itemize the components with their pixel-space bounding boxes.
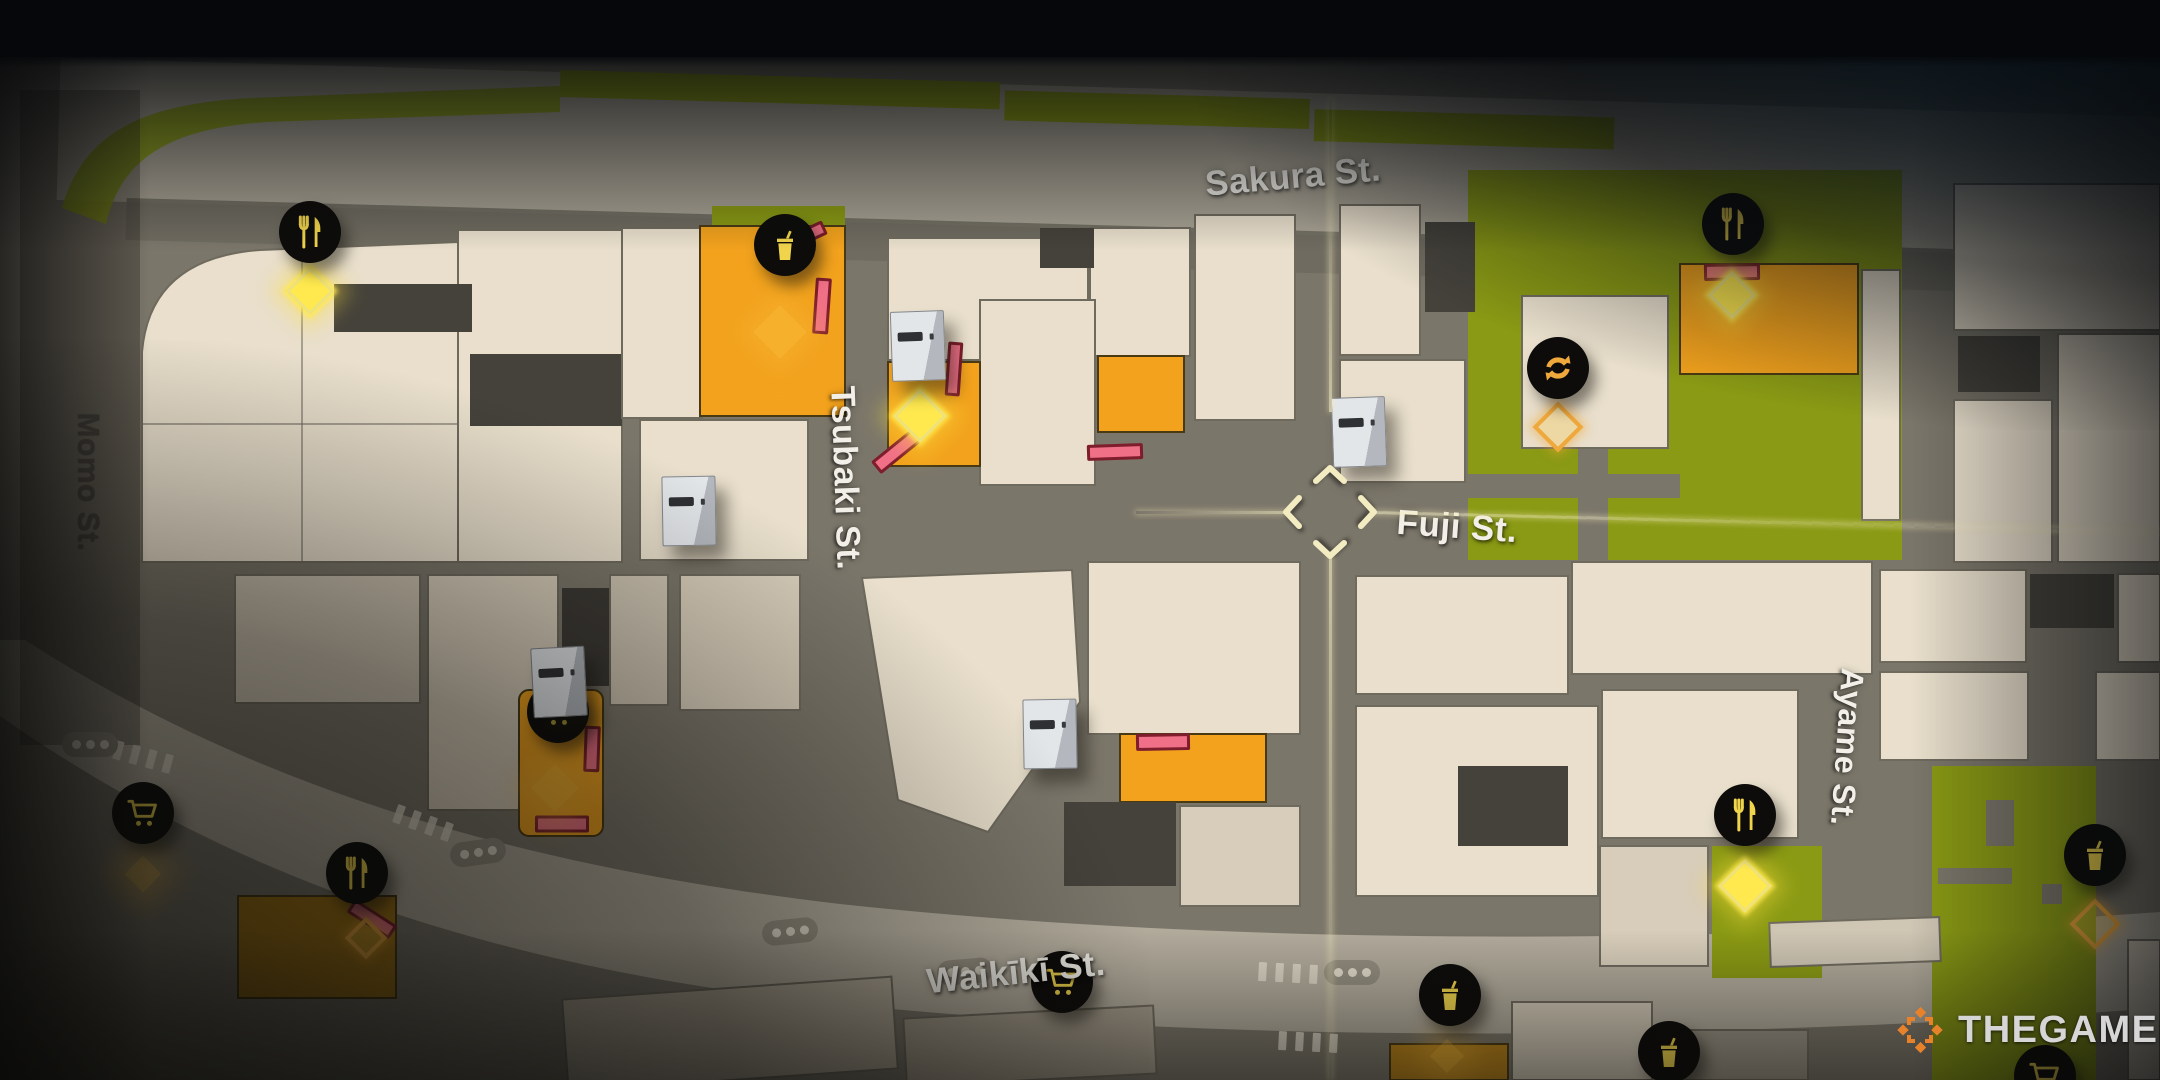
restaurant-icon[interactable] <box>279 201 341 263</box>
cursor-axis-line <box>1136 511 1288 514</box>
drink-glyph <box>1430 975 1470 1015</box>
street-label-sakura: Sakura St. <box>1203 149 1382 204</box>
objective-diamond-marker <box>1430 1039 1464 1073</box>
crosswalk-stripe <box>1312 1033 1321 1052</box>
crosswalk-stripe <box>1275 963 1284 982</box>
street-label-ayame: Ayame St. <box>1823 667 1871 827</box>
drink-icon[interactable] <box>1419 964 1481 1026</box>
crosswalk-dots <box>62 732 118 757</box>
crosswalk-dot <box>86 740 95 749</box>
restaurant-icon[interactable] <box>326 842 388 904</box>
entrance-marker <box>1087 443 1144 461</box>
restaurant-glyph <box>337 853 377 893</box>
crosswalk-stripe <box>1295 1032 1304 1051</box>
drink-glyph <box>765 225 805 265</box>
street-label-tsubaki: Tsubaki St. <box>822 385 867 571</box>
crosswalk-stripe <box>1309 965 1318 984</box>
cursor-chevron-up <box>1310 460 1350 488</box>
street-label-fuji: Fuji St. <box>1395 503 1518 551</box>
crosswalk-stripe <box>128 745 141 765</box>
map-features: Sakura St.Momo St.Tsubaki St.Fuji St.Aya… <box>0 0 2160 1080</box>
objective-diamond-marker <box>753 305 807 359</box>
crosswalk-stripe <box>161 753 174 773</box>
top-black-bar <box>0 0 2160 57</box>
drink-glyph <box>1649 1032 1689 1072</box>
objective-diamond-marker <box>2070 899 2121 950</box>
street-label-momo: Momo St. <box>71 413 105 552</box>
objective-diamond-marker <box>1718 859 1772 913</box>
crosswalk-stripe <box>1258 962 1267 981</box>
crosswalk-stripe <box>440 821 454 842</box>
crosswalk-stripes <box>392 804 454 842</box>
thegamer-watermark-text: THEGAMER <box>1958 1009 2160 1052</box>
crosswalk-dots <box>761 916 819 947</box>
crosswalk-dot <box>473 847 483 857</box>
crosswalk-stripe <box>424 816 438 837</box>
vending-machine-icon <box>661 476 716 547</box>
entrance-marker <box>1136 733 1190 751</box>
crosswalk-stripes <box>112 740 174 774</box>
drink-glyph <box>2075 835 2115 875</box>
drink-icon[interactable] <box>754 214 816 276</box>
entrance-marker <box>945 342 964 397</box>
crosswalk-stripes <box>1258 962 1318 984</box>
cart-icon[interactable] <box>112 782 174 844</box>
objective-diamond-marker <box>125 856 162 893</box>
crosswalk-dot <box>799 925 809 935</box>
objective-diamond-marker <box>286 267 334 315</box>
drink-icon[interactable] <box>2064 824 2126 886</box>
restaurant-glyph <box>1725 795 1765 835</box>
cart-glyph <box>2025 1056 2065 1080</box>
crosswalk-dots <box>449 836 508 869</box>
crosswalk-dot <box>459 849 469 859</box>
restaurant-glyph <box>1713 204 1753 244</box>
cursor-axis-line <box>1329 556 1332 1080</box>
restaurant-glyph <box>290 212 330 252</box>
thegamer-logo-icon <box>1896 1006 1944 1054</box>
objective-diamond-marker <box>893 389 947 443</box>
crosswalk-stripe <box>1292 964 1301 983</box>
cursor-axis-line <box>1329 100 1332 412</box>
entrance-marker <box>535 816 589 833</box>
taxi-glyph <box>1538 348 1578 388</box>
crosswalk-dot <box>1348 968 1357 977</box>
objective-diamond-marker <box>531 764 579 812</box>
entrance-marker <box>583 726 601 773</box>
crosswalk-dot <box>771 928 781 938</box>
crosswalk-dot <box>100 740 109 749</box>
crosswalk-stripe <box>1278 1031 1287 1050</box>
crosswalk-dots <box>1324 960 1380 985</box>
drink-icon[interactable] <box>1638 1021 1700 1080</box>
entrance-marker <box>812 278 832 335</box>
restaurant-icon[interactable] <box>1714 784 1776 846</box>
taxi-icon[interactable] <box>1527 337 1589 399</box>
vending-machine-icon <box>1331 396 1387 468</box>
crosswalk-dot <box>487 845 497 855</box>
crosswalk-stripe <box>145 749 158 769</box>
crosswalk-dot <box>72 740 81 749</box>
crosswalk-stripe <box>408 810 422 831</box>
objective-diamond-marker <box>1533 402 1584 453</box>
crosswalk-dot <box>1362 968 1371 977</box>
cart-glyph <box>123 793 163 833</box>
thegamer-watermark: THEGAMER <box>1896 1006 2160 1054</box>
crosswalk-dot <box>785 927 795 937</box>
game-map-screen: Sakura St.Momo St.Tsubaki St.Fuji St.Aya… <box>0 0 2160 1080</box>
restaurant-icon[interactable] <box>1702 193 1764 255</box>
crosswalk-stripe <box>392 804 406 825</box>
vending-machine-icon <box>1022 699 1077 770</box>
vending-machine-icon <box>890 310 946 382</box>
crosswalk-dot <box>1334 968 1343 977</box>
vending-machine-icon <box>530 646 588 719</box>
